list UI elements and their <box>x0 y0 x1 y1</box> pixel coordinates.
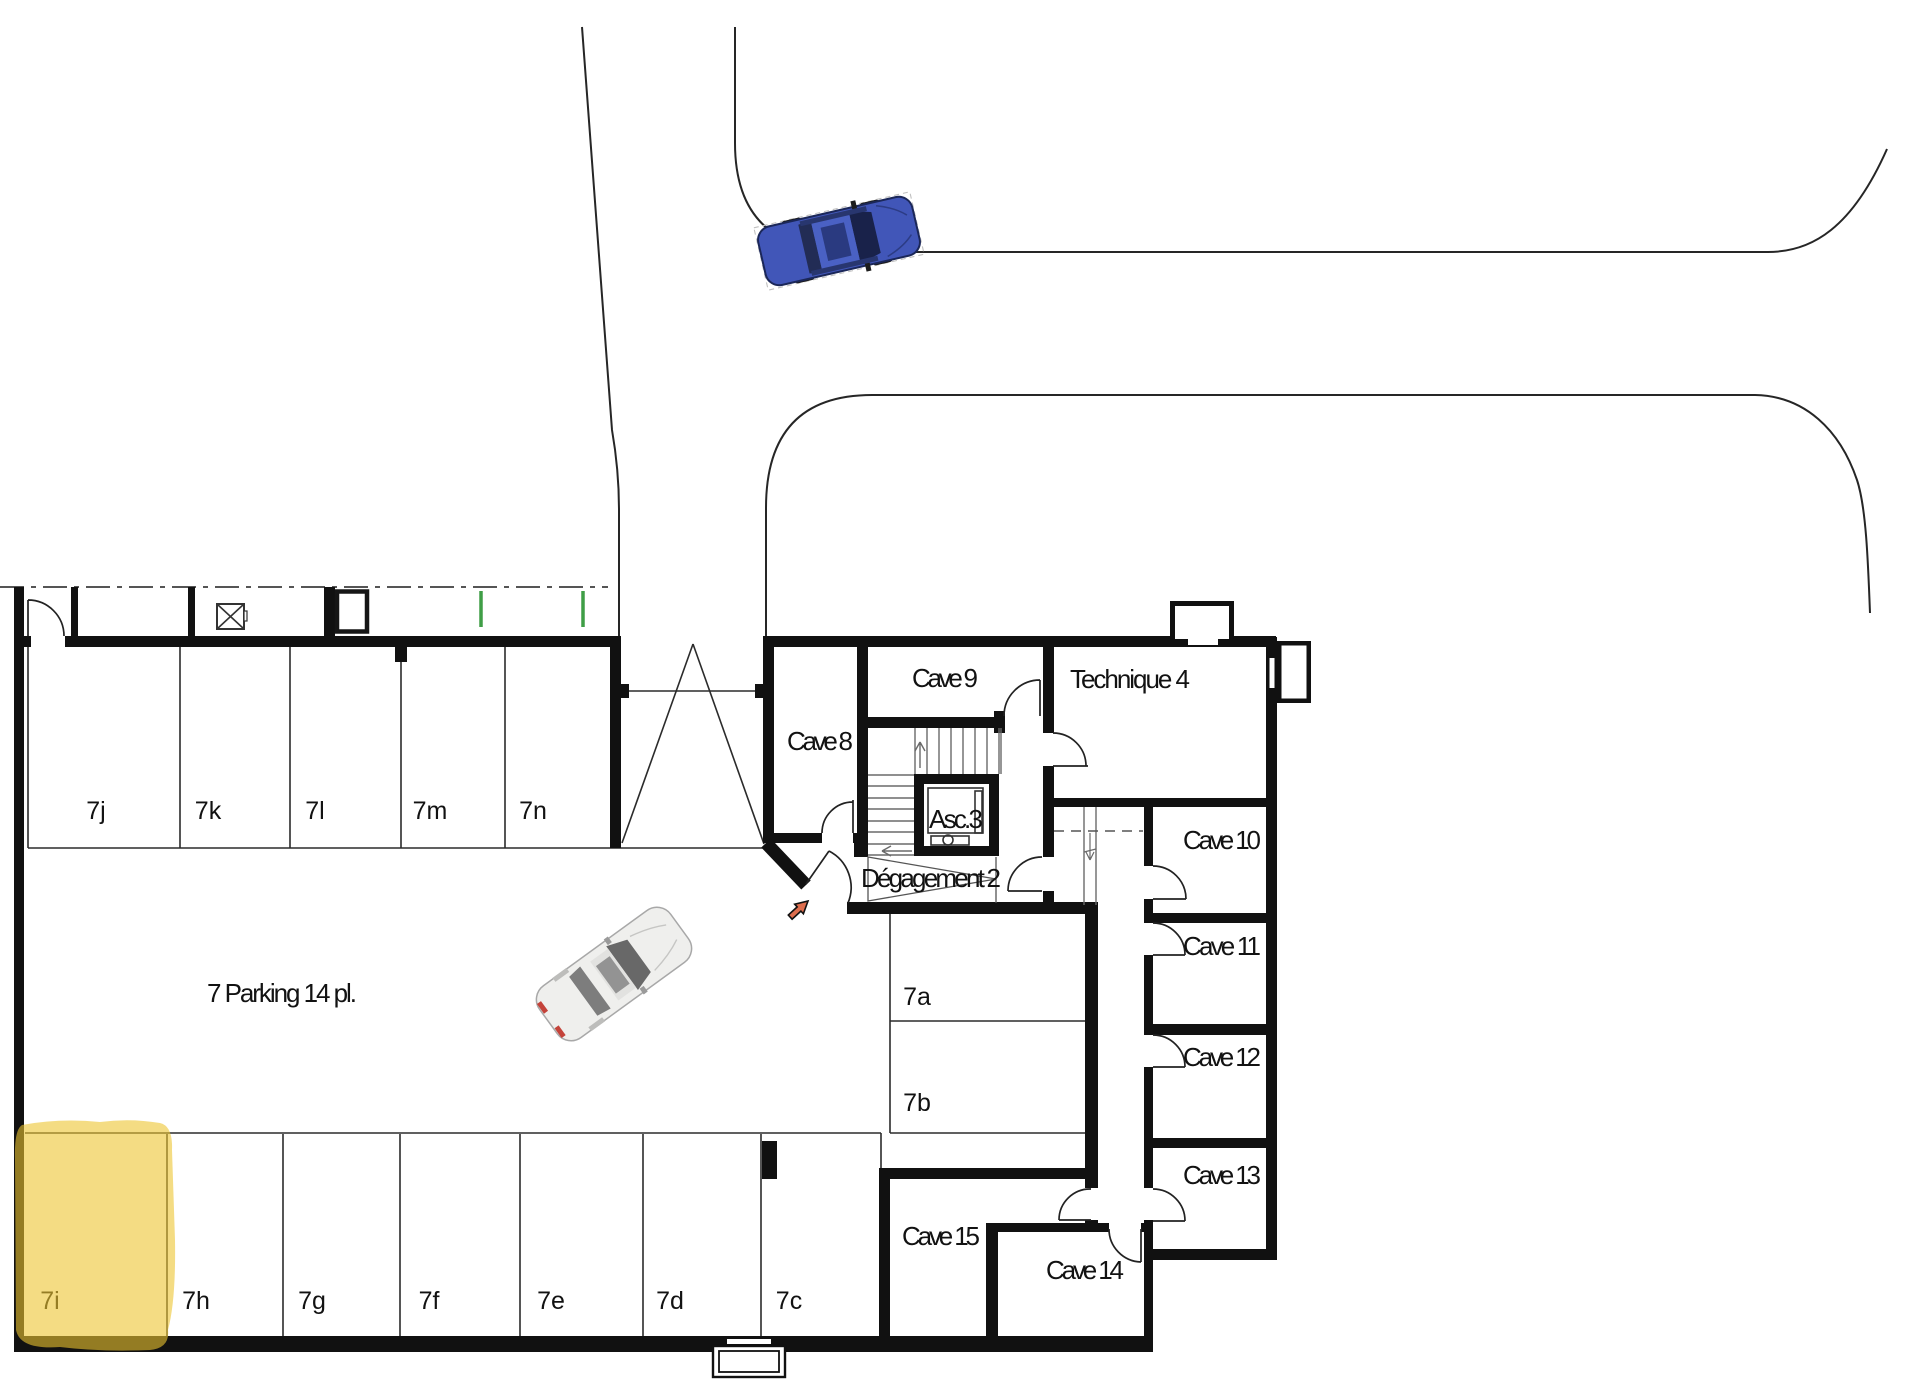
svg-text:7j: 7j <box>86 797 105 825</box>
svg-text:Dégagement 2: Dégagement 2 <box>861 863 1001 893</box>
svg-text:Cave 15: Cave 15 <box>902 1221 980 1251</box>
svg-text:Cave 12: Cave 12 <box>1183 1042 1261 1072</box>
svg-text:7c: 7c <box>776 1287 802 1315</box>
svg-text:Cave 8: Cave 8 <box>787 726 853 756</box>
svg-text:7n: 7n <box>519 797 547 825</box>
svg-text:Cave 13: Cave 13 <box>1183 1160 1261 1190</box>
svg-text:7e: 7e <box>537 1287 565 1315</box>
svg-text:7f: 7f <box>419 1287 440 1315</box>
svg-text:7g: 7g <box>298 1287 326 1315</box>
svg-text:7m: 7m <box>413 797 448 825</box>
svg-text:Cave 10: Cave 10 <box>1183 825 1261 855</box>
svg-text:7l: 7l <box>305 797 324 825</box>
svg-text:Technique 4: Technique 4 <box>1070 664 1190 694</box>
svg-text:7d: 7d <box>656 1287 684 1315</box>
svg-text:Cave 9: Cave 9 <box>912 663 978 693</box>
svg-text:7h: 7h <box>182 1287 210 1315</box>
svg-text:Cave 11: Cave 11 <box>1183 931 1261 961</box>
svg-text:Cave 14: Cave 14 <box>1046 1255 1124 1285</box>
svg-text:Asc.3: Asc.3 <box>929 804 983 834</box>
svg-text:7a: 7a <box>903 983 931 1011</box>
svg-text:7k: 7k <box>195 797 222 825</box>
svg-text:7 Parking 14 pl.: 7 Parking 14 pl. <box>207 978 357 1008</box>
svg-text:7b: 7b <box>903 1089 931 1117</box>
